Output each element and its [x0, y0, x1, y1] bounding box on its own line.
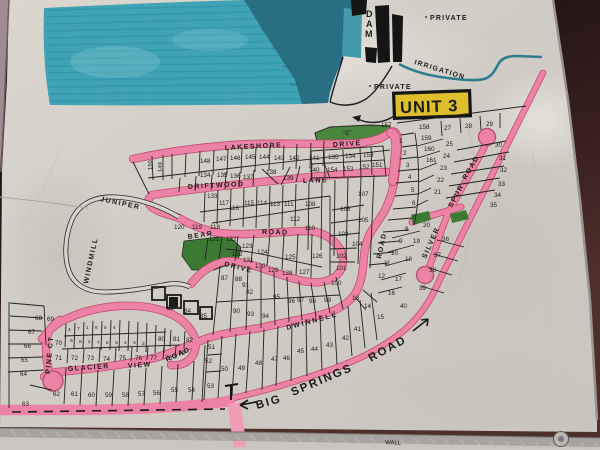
svg-text:1: 1 [399, 138, 403, 145]
svg-text:43: 43 [326, 342, 334, 349]
svg-text:52: 52 [205, 358, 213, 365]
svg-text:LANE: LANE [303, 177, 328, 185]
svg-text:45: 45 [297, 348, 305, 355]
svg-text:PRIVATE: PRIVATE [374, 84, 412, 91]
svg-text:70: 70 [55, 340, 63, 347]
svg-text:5: 5 [411, 187, 415, 194]
svg-text:39: 39 [419, 285, 427, 292]
svg-text:28: 28 [465, 123, 473, 130]
svg-text:137: 137 [243, 174, 254, 181]
svg-text:29: 29 [486, 121, 494, 128]
svg-text:76: 76 [135, 355, 143, 362]
svg-text:4: 4 [124, 340, 127, 346]
svg-text:159: 159 [421, 135, 432, 142]
svg-text:127: 127 [299, 269, 310, 276]
svg-text:44: 44 [311, 346, 319, 353]
svg-text:154: 154 [327, 167, 338, 174]
svg-text:100: 100 [331, 280, 342, 287]
svg-text:105: 105 [358, 217, 369, 224]
svg-text:10: 10 [391, 250, 399, 257]
svg-text:"E": "E" [343, 130, 352, 137]
svg-text:131: 131 [243, 257, 254, 264]
svg-text:62: 62 [53, 391, 61, 398]
svg-text:87: 87 [221, 275, 229, 282]
svg-text:85: 85 [200, 313, 208, 320]
svg-text:35: 35 [490, 202, 498, 209]
svg-text:132: 132 [232, 251, 243, 258]
svg-text:90: 90 [233, 308, 241, 315]
svg-text:2: 2 [142, 341, 145, 347]
svg-text:36: 36 [442, 236, 450, 243]
svg-text:3: 3 [406, 162, 410, 169]
svg-text:139: 139 [283, 175, 294, 182]
svg-text:106: 106 [340, 206, 351, 213]
svg-text:46: 46 [283, 355, 291, 362]
svg-text:66: 66 [24, 343, 32, 350]
svg-text:7: 7 [412, 214, 416, 221]
svg-text:6: 6 [106, 340, 109, 346]
svg-text:104: 104 [352, 241, 363, 248]
svg-text:150: 150 [148, 160, 154, 170]
svg-text:31: 31 [499, 155, 507, 162]
svg-text:56: 56 [153, 390, 161, 397]
svg-text:60: 60 [88, 392, 96, 399]
svg-text:34: 34 [494, 192, 502, 199]
svg-text:136: 136 [230, 173, 241, 180]
svg-text:15: 15 [377, 314, 385, 321]
svg-text:8: 8 [79, 339, 82, 345]
svg-text:112: 112 [290, 216, 301, 223]
svg-text:146: 146 [230, 155, 241, 162]
svg-text:16: 16 [388, 290, 396, 297]
svg-text:113: 113 [270, 201, 281, 208]
svg-text:21: 21 [434, 189, 442, 196]
svg-text:40: 40 [400, 303, 408, 310]
svg-text:93: 93 [247, 311, 255, 318]
svg-text:6: 6 [95, 325, 98, 331]
svg-text:148: 148 [200, 158, 211, 165]
svg-text:5: 5 [115, 340, 118, 346]
svg-text:UNIT 3: UNIT 3 [400, 97, 459, 117]
svg-text:143: 143 [274, 155, 285, 162]
svg-text:97: 97 [297, 297, 305, 304]
svg-text:M: M [365, 29, 373, 39]
svg-text:37: 37 [434, 252, 442, 259]
svg-text:80: 80 [158, 336, 166, 343]
svg-text:108: 108 [305, 201, 316, 208]
svg-text:140: 140 [309, 167, 320, 174]
svg-text:115: 115 [244, 200, 255, 207]
svg-text:92: 92 [246, 289, 254, 296]
svg-text:149: 149 [158, 162, 164, 172]
svg-text:153: 153 [363, 152, 374, 159]
svg-text:4: 4 [68, 327, 71, 333]
svg-text:81: 81 [173, 336, 181, 343]
svg-text:134: 134 [200, 172, 211, 179]
svg-text:157: 157 [381, 122, 392, 129]
svg-text:8: 8 [405, 226, 409, 233]
svg-text:51: 51 [208, 344, 216, 351]
svg-text:69: 69 [47, 316, 55, 323]
svg-text:144: 144 [259, 154, 270, 161]
svg-text:82: 82 [186, 337, 194, 344]
svg-text:47: 47 [271, 356, 279, 363]
svg-text:20: 20 [423, 222, 431, 229]
svg-text:142: 142 [289, 155, 300, 162]
svg-text:125: 125 [285, 254, 296, 261]
svg-text:71: 71 [55, 355, 63, 362]
svg-text:7: 7 [97, 340, 100, 346]
svg-text:9: 9 [70, 338, 73, 344]
svg-text:58: 58 [122, 392, 130, 399]
svg-text:63: 63 [22, 401, 30, 408]
svg-text:3: 3 [133, 340, 136, 346]
svg-text:68: 68 [35, 315, 43, 322]
svg-text:19: 19 [413, 238, 421, 245]
svg-text:160: 160 [424, 146, 435, 153]
svg-text:117: 117 [219, 200, 230, 207]
svg-text:107: 107 [358, 191, 369, 198]
svg-text:72: 72 [71, 355, 79, 362]
svg-text:11: 11 [384, 260, 391, 267]
svg-text:124: 124 [257, 249, 268, 256]
svg-text:133: 133 [207, 193, 218, 200]
svg-text:12: 12 [378, 273, 386, 280]
svg-text:59: 59 [105, 392, 113, 399]
svg-text:128: 128 [282, 270, 293, 277]
svg-text:PRIVATE: PRIVATE [430, 15, 468, 22]
svg-text:122: 122 [226, 236, 237, 243]
svg-text:123: 123 [242, 243, 253, 250]
svg-text:41: 41 [354, 326, 362, 333]
svg-text:9: 9 [399, 238, 403, 245]
svg-text:38: 38 [429, 267, 437, 274]
svg-text:13: 13 [352, 295, 360, 302]
svg-text:4: 4 [113, 325, 116, 331]
svg-text:55: 55 [171, 387, 179, 394]
svg-text:116: 116 [229, 205, 240, 212]
svg-text:98: 98 [309, 298, 317, 305]
svg-text:5: 5 [104, 325, 107, 331]
svg-text:114: 114 [257, 200, 268, 207]
svg-text:153: 153 [343, 166, 354, 173]
svg-text:126: 126 [312, 253, 323, 260]
svg-text:17: 17 [395, 276, 403, 283]
svg-text:24: 24 [443, 153, 451, 160]
svg-text:129: 129 [268, 267, 279, 274]
svg-text:14: 14 [364, 303, 372, 310]
svg-text:7: 7 [77, 326, 80, 332]
svg-text:74: 74 [103, 356, 111, 363]
svg-text:94: 94 [262, 313, 270, 320]
svg-text:57: 57 [138, 391, 146, 398]
svg-text:95: 95 [273, 294, 281, 301]
svg-text:110: 110 [305, 225, 316, 232]
svg-text:23: 23 [440, 165, 448, 172]
svg-text:ROAD: ROAD [262, 229, 289, 236]
svg-text:6: 6 [412, 200, 416, 207]
svg-text:119: 119 [192, 224, 203, 231]
svg-text:49: 49 [238, 365, 246, 372]
svg-text:WALL: WALL [385, 440, 402, 447]
svg-text:111: 111 [284, 201, 294, 208]
svg-text:54: 54 [188, 387, 196, 394]
svg-text:1: 1 [86, 325, 89, 331]
svg-text:2: 2 [88, 339, 91, 345]
svg-text:2: 2 [403, 150, 407, 157]
svg-text:134: 134 [345, 153, 356, 160]
svg-text:151: 151 [372, 162, 383, 169]
svg-text:67: 67 [28, 329, 36, 336]
svg-text:147: 147 [216, 156, 227, 163]
svg-text:152: 152 [359, 164, 370, 171]
svg-text:135: 135 [217, 172, 228, 179]
svg-text:130: 130 [255, 263, 266, 270]
svg-text:18: 18 [405, 256, 413, 263]
svg-text:101: 101 [336, 265, 347, 272]
svg-text:25: 25 [446, 141, 454, 148]
svg-text:42: 42 [342, 335, 350, 342]
svg-text:30: 30 [495, 142, 503, 149]
svg-text:135: 135 [328, 154, 339, 161]
svg-text:4: 4 [408, 174, 412, 181]
svg-text:141: 141 [309, 155, 320, 162]
svg-text:103: 103 [338, 231, 349, 238]
svg-text:120: 120 [174, 224, 185, 231]
svg-text:50: 50 [221, 366, 229, 373]
svg-text:145: 145 [245, 154, 256, 161]
svg-text:83: 83 [167, 305, 175, 312]
svg-text:32: 32 [500, 167, 508, 174]
svg-text:138: 138 [266, 169, 277, 176]
svg-text:65: 65 [21, 357, 29, 364]
svg-text:27: 27 [444, 125, 452, 132]
svg-text:161: 161 [426, 157, 437, 164]
svg-text:61: 61 [71, 391, 79, 398]
svg-text:73: 73 [87, 355, 95, 362]
svg-text:75: 75 [119, 355, 127, 362]
svg-text:64: 64 [20, 371, 28, 378]
svg-text:22: 22 [437, 177, 445, 184]
svg-text:48: 48 [255, 360, 263, 367]
svg-text:53: 53 [207, 383, 215, 390]
svg-text:A: A [366, 19, 373, 29]
svg-text:96: 96 [288, 298, 296, 305]
svg-text:33: 33 [498, 181, 506, 188]
svg-text:102: 102 [336, 253, 347, 260]
svg-text:D: D [366, 9, 373, 19]
svg-text:84: 84 [184, 308, 192, 315]
svg-text:91: 91 [242, 282, 250, 289]
svg-text:158: 158 [419, 124, 430, 131]
svg-text:99: 99 [324, 297, 332, 304]
